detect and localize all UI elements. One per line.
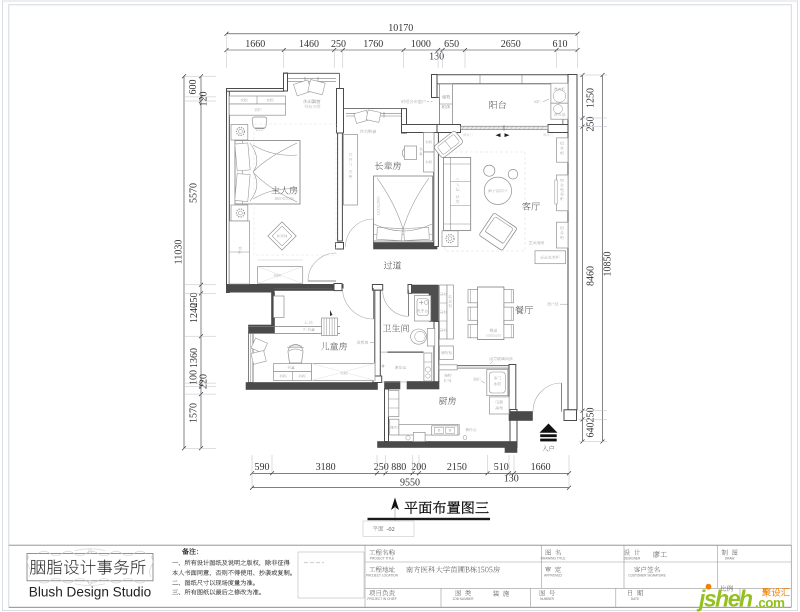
svg-text:650: 650 [444,39,459,50]
svg-text:DESIGNER: DESIGNER [624,557,641,561]
svg-text:.com: .com [755,596,785,611]
svg-text:PROJECT TITLE: PROJECT TITLE [370,557,394,561]
svg-text:130: 130 [504,474,519,485]
svg-text:1000: 1000 [411,39,431,50]
svg-text:10170: 10170 [388,23,413,34]
svg-text:DATE: DATE [631,597,639,601]
svg-text:1250: 1250 [586,88,597,108]
svg-text:CUSTOMER SIGNATURE: CUSTOMER SIGNATURE [628,574,665,578]
svg-text:1360: 1360 [189,348,200,368]
svg-text:PROJECT LOCATION: PROJECT LOCATION [366,574,398,578]
svg-text:jsheh: jsheh [696,586,753,612]
svg-text:10850: 10850 [603,252,614,277]
svg-text:11030: 11030 [174,240,185,265]
svg-text:610: 610 [553,39,568,50]
svg-text:590: 590 [255,462,270,473]
svg-text:1240: 1240 [189,303,200,323]
svg-text:NUMBER: NUMBER [540,597,555,601]
svg-text:1760: 1760 [363,39,383,50]
svg-text:1660: 1660 [531,462,551,473]
svg-text:640: 640 [586,423,597,438]
svg-text:DRAWING TITLE: DRAWING TITLE [541,557,566,561]
svg-text:5570: 5570 [189,183,200,203]
svg-text:250: 250 [331,39,346,50]
svg-text:DRAW: DRAW [725,557,735,561]
svg-text:250: 250 [374,462,389,473]
svg-text:PROJECT IN CHIEF: PROJECT IN CHIEF [367,597,396,601]
svg-text:510: 510 [494,462,509,473]
svg-text:120: 120 [199,92,210,107]
svg-text:APPROVED: APPROVED [544,574,562,578]
svg-text:880: 880 [391,462,406,473]
svg-text:250: 250 [586,117,597,132]
svg-text:Blush Design Studio: Blush Design Studio [29,584,151,599]
svg-text:9550: 9550 [400,477,420,488]
svg-text:130: 130 [429,52,444,63]
svg-text:600: 600 [188,80,199,95]
svg-text:1570: 1570 [189,403,200,423]
svg-text:-02: -02 [387,526,395,533]
svg-text:2650: 2650 [501,39,521,50]
svg-text:JOB NUMBER: JOB NUMBER [453,597,475,601]
svg-text:1460: 1460 [299,39,319,50]
svg-text:3180: 3180 [316,462,336,473]
svg-text:250: 250 [586,408,597,423]
svg-text:2150: 2150 [447,462,467,473]
svg-text:1660: 1660 [245,39,265,50]
svg-text:8460: 8460 [586,266,597,286]
